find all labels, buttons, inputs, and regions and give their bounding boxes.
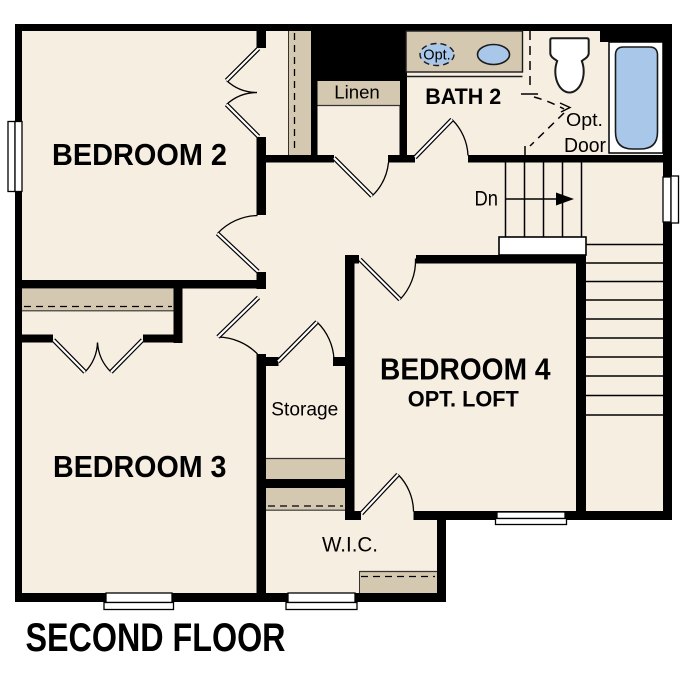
svg-text:BEDROOM 2: BEDROOM 2 — [52, 137, 227, 172]
svg-text:W.I.C.: W.I.C. — [322, 534, 378, 557]
svg-text:BATH 2: BATH 2 — [425, 84, 501, 109]
svg-text:Opt.: Opt. — [566, 109, 603, 130]
svg-text:Linen: Linen — [334, 82, 380, 103]
svg-text:Door: Door — [564, 135, 606, 157]
svg-text:BEDROOM 4: BEDROOM 4 — [380, 351, 551, 386]
svg-text:Opt.: Opt. — [423, 48, 450, 64]
svg-text:SECOND FLOOR: SECOND FLOOR — [26, 616, 286, 660]
svg-text:BEDROOM 3: BEDROOM 3 — [53, 449, 227, 484]
svg-text:OPT. LOFT: OPT. LOFT — [408, 387, 520, 412]
svg-text:Storage: Storage — [271, 400, 338, 421]
svg-text:Dn: Dn — [475, 188, 499, 211]
